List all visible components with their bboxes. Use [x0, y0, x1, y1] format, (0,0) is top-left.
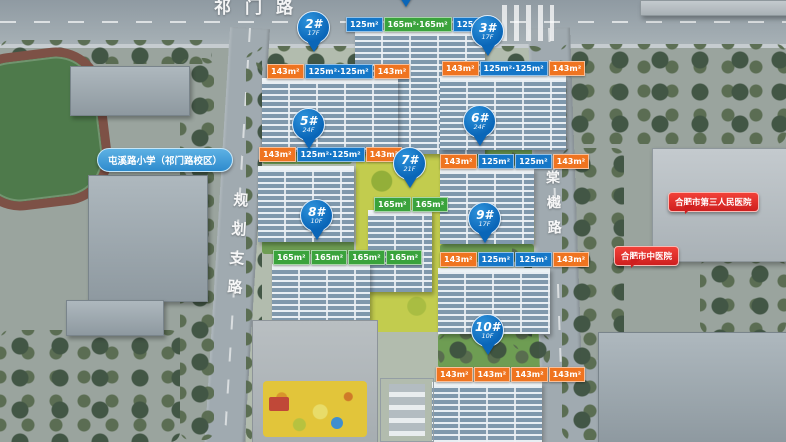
pin-head: 3# 17F: [471, 15, 504, 48]
pin-building-1-clipped[interactable]: [389, 0, 422, 14]
pin-floor-label: 17F: [307, 30, 319, 37]
tree-band: [0, 330, 180, 442]
pin-tail: [307, 41, 321, 59]
poi-hospital-third-bubble[interactable]: 合肥市第三人民医院: [668, 192, 759, 212]
area-tag: 143m²: [549, 367, 586, 382]
tower-block-3: [440, 76, 566, 150]
area-tag: 143m²: [553, 154, 590, 169]
pin-floor-label: 17F: [478, 221, 490, 228]
area-strip-building-1: 125m² 165m²·165m² 125m²: [346, 17, 489, 32]
area-strip-building-8: 165m² 165m² 165m² 165m²: [273, 250, 422, 265]
area-tag: 125m²: [515, 252, 552, 267]
area-tag: 165m²·165m²: [384, 17, 452, 32]
tower-block-2: [262, 78, 398, 152]
pin-building-10[interactable]: 10# 10F: [471, 314, 504, 362]
area-tag: 143m²: [474, 367, 511, 382]
area-tag: 165m²: [348, 250, 385, 265]
area-tag: 165m²: [412, 197, 449, 212]
pin-tail: [403, 177, 417, 195]
pin-floor-label: 17F: [481, 34, 493, 41]
pin-tail: [473, 135, 487, 153]
area-tag: 125m²: [515, 154, 552, 169]
area-tag: 143m²: [553, 252, 590, 267]
pin-tail: [478, 232, 492, 250]
pin-head: 7# 21F: [393, 147, 426, 180]
tower-block-10: [432, 382, 542, 442]
area-strip-building-2: 143m² 125m²·125m² 143m²: [267, 64, 410, 79]
pin-tail: [399, 0, 413, 14]
area-tag: 165m²: [386, 250, 423, 265]
pin-floor-label: 24F: [473, 124, 485, 131]
road-label-top: 祁门路: [214, 0, 307, 18]
area-tag: 125m²: [478, 154, 515, 169]
pin-head: 2# 17F: [297, 11, 330, 44]
area-tag: 125m²·125m²: [305, 64, 373, 79]
pin-building-6[interactable]: 6# 24F: [463, 105, 496, 153]
pin-head: 8# 10F: [300, 199, 333, 232]
play-structure-blue: [331, 417, 343, 429]
area-strip-building-7: 165m² 165m²: [374, 197, 448, 212]
school-building: [70, 66, 190, 116]
area-tag: 125m²: [478, 252, 515, 267]
poi-school-bubble[interactable]: 屯溪路小学（祁门路校区）: [97, 148, 233, 172]
school-building: [88, 175, 208, 302]
pin-building-3[interactable]: 3# 17F: [471, 15, 504, 63]
pin-building-2[interactable]: 2# 17F: [297, 11, 330, 59]
pin-head: 6# 24F: [463, 105, 496, 138]
pin-head: 5# 24F: [292, 108, 325, 141]
pin-head: 9# 17F: [468, 202, 501, 235]
masterplan-aerial-map: 祁门路 规划支路 棠樾路 125m² 165m²·165m² 125m² 143…: [0, 0, 786, 442]
tree-band: [560, 44, 786, 144]
pin-head: 10# 10F: [471, 314, 504, 347]
area-strip-building-9: 143m² 125m² 125m² 143m²: [440, 252, 589, 267]
tree-band: [700, 258, 786, 334]
pin-building-7[interactable]: 7# 21F: [393, 147, 426, 195]
pin-building-9[interactable]: 9# 17F: [468, 202, 501, 250]
hospital-building: [598, 332, 786, 442]
pin-tail: [481, 45, 495, 63]
area-tag: 165m²: [273, 250, 310, 265]
pin-tail: [302, 138, 316, 156]
kindergarten-building: [252, 320, 378, 442]
tower-block-8: [272, 264, 370, 324]
pin-building-5[interactable]: 5# 24F: [292, 108, 325, 156]
poi-hospital-tcm-bubble[interactable]: 合肥市中医院: [614, 246, 679, 266]
offsite-building: [640, 0, 786, 16]
poi-hospital-third-label: 合肥市第三人民医院: [675, 198, 752, 208]
area-strip-building-10: 143m² 143m² 143m² 143m²: [436, 367, 585, 382]
parking-lot: [380, 378, 434, 442]
school-building: [66, 300, 164, 336]
pin-tail: [310, 229, 324, 247]
area-tag: 143m²: [374, 64, 411, 79]
area-strip-building-3: 143m² 125m²·125m² 143m²: [442, 61, 585, 76]
poi-hospital-tcm-label: 合肥市中医院: [621, 252, 672, 262]
area-tag: 143m²: [259, 147, 296, 162]
pin-tail: [481, 344, 495, 362]
crosswalk: [502, 5, 554, 41]
area-tag: 143m²: [436, 367, 473, 382]
pin-floor-label: 21F: [403, 166, 415, 173]
area-tag: 143m²: [442, 61, 479, 76]
pin-floor-label: 24F: [302, 127, 314, 134]
area-tag: 143m²: [267, 64, 304, 79]
area-tag: 165m²: [311, 250, 348, 265]
poi-school-label: 屯溪路小学（祁门路校区）: [108, 156, 222, 167]
area-tag: 143m²: [440, 154, 477, 169]
area-tag: 165m²: [374, 197, 411, 212]
pin-floor-label: 10F: [481, 333, 493, 340]
road-label-right: 棠樾路: [542, 170, 565, 246]
area-strip-building-5: 143m² 125m²·125m² 143m²: [259, 147, 402, 162]
area-tag: 143m²: [511, 367, 548, 382]
area-tag: 143m²: [440, 252, 477, 267]
play-structure-red: [269, 397, 289, 411]
area-tag: 125m²: [346, 17, 383, 32]
pin-building-8[interactable]: 8# 10F: [300, 199, 333, 247]
area-strip-building-6: 143m² 125m² 125m² 143m²: [440, 154, 589, 169]
area-tag: 125m²·125m²: [480, 61, 548, 76]
area-tag: 143m²: [549, 61, 586, 76]
pin-floor-label: 10F: [310, 218, 322, 225]
